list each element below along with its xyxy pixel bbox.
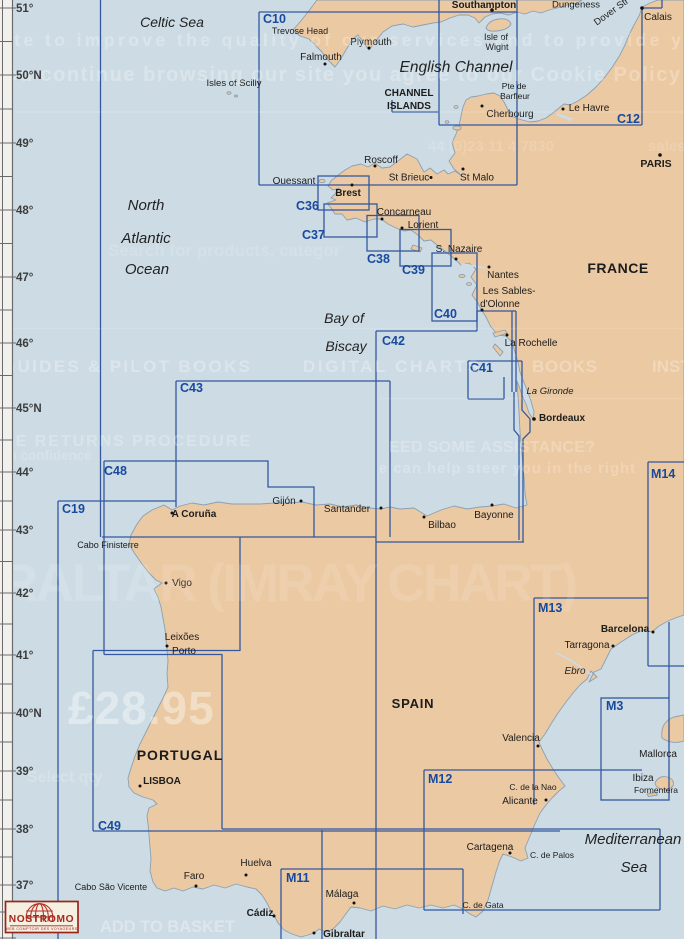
svg-text:45°N: 45°N bbox=[16, 403, 42, 415]
svg-text:GUIDES & PILOT BOOKS: GUIDES & PILOT BOOKS bbox=[2, 357, 250, 376]
svg-text:Sea: Sea bbox=[621, 859, 648, 876]
svg-text:41°: 41° bbox=[16, 650, 34, 662]
svg-text:INSTRUMENTS: INSTRUMENTS bbox=[652, 357, 684, 376]
svg-text:C40: C40 bbox=[434, 307, 457, 321]
svg-text:Mediterranean: Mediterranean bbox=[585, 831, 682, 848]
svg-text:Ibiza: Ibiza bbox=[632, 773, 654, 784]
svg-text:M11: M11 bbox=[286, 871, 310, 885]
svg-text:Search for products, categor: Search for products, categor bbox=[108, 241, 341, 260]
svg-text:Lorient: Lorient bbox=[408, 220, 439, 231]
svg-text:A Coruña: A Coruña bbox=[172, 509, 217, 520]
svg-text:Ouessant: Ouessant bbox=[273, 176, 316, 187]
svg-text:44°: 44° bbox=[16, 467, 34, 479]
svg-text:Celtic Sea: Celtic Sea bbox=[140, 14, 204, 30]
svg-text:NOSTROMO: NOSTROMO bbox=[9, 914, 75, 925]
svg-text:C38: C38 bbox=[367, 252, 390, 266]
svg-text:Tarragona: Tarragona bbox=[564, 640, 609, 651]
svg-text:43°: 43° bbox=[16, 525, 34, 537]
svg-text:PARIS: PARIS bbox=[640, 158, 671, 170]
svg-text:La Gironde: La Gironde bbox=[526, 386, 573, 397]
svg-text:BOOKS: BOOKS bbox=[532, 357, 597, 376]
svg-text:46°: 46° bbox=[16, 338, 34, 350]
svg-text:C12: C12 bbox=[617, 112, 640, 126]
svg-text:Cartagena: Cartagena bbox=[467, 842, 514, 853]
svg-text:C. de Gata: C. de Gata bbox=[462, 900, 503, 910]
svg-text:44 (0)23 11 4 7830: 44 (0)23 11 4 7830 bbox=[428, 138, 554, 155]
svg-text:North: North bbox=[128, 197, 165, 214]
svg-text:Dungeness: Dungeness bbox=[552, 0, 600, 11]
svg-text:Valencia: Valencia bbox=[502, 733, 540, 744]
svg-text:51°: 51° bbox=[16, 3, 34, 15]
svg-text:d'Olonne: d'Olonne bbox=[480, 299, 520, 310]
svg-text:C37: C37 bbox=[302, 228, 325, 242]
svg-text:LISBOA: LISBOA bbox=[143, 776, 181, 787]
svg-text:Mallorca: Mallorca bbox=[639, 749, 677, 760]
svg-text:37°: 37° bbox=[16, 880, 34, 892]
svg-text:42°: 42° bbox=[16, 588, 34, 600]
svg-text:M14: M14 bbox=[651, 467, 675, 481]
svg-text:Gijón: Gijón bbox=[272, 496, 295, 507]
svg-text:C10: C10 bbox=[263, 12, 286, 26]
svg-text:Bay of: Bay of bbox=[324, 310, 366, 326]
svg-text:th confidence: th confidence bbox=[4, 448, 92, 463]
svg-text:Select qty: Select qty bbox=[27, 769, 103, 786]
svg-text:CHANNEL: CHANNEL bbox=[385, 88, 434, 99]
svg-text:Cabo São Vicente: Cabo São Vicente bbox=[75, 882, 147, 892]
svg-text:Porto: Porto bbox=[172, 646, 196, 657]
svg-text:50°N: 50°N bbox=[16, 70, 42, 82]
svg-text:Ocean: Ocean bbox=[125, 261, 169, 278]
svg-text:Bilbao: Bilbao bbox=[428, 520, 456, 531]
svg-text:Brest: Brest bbox=[335, 188, 361, 199]
svg-text:M3: M3 bbox=[606, 699, 623, 713]
svg-text:49°: 49° bbox=[16, 138, 34, 150]
svg-text:Faro: Faro bbox=[184, 871, 205, 882]
svg-text:39°: 39° bbox=[16, 766, 34, 778]
svg-text:Biscay: Biscay bbox=[325, 338, 367, 354]
svg-text:RALTAR (IMRAY CHART): RALTAR (IMRAY CHART) bbox=[0, 554, 578, 613]
svg-text:C42: C42 bbox=[382, 334, 405, 348]
svg-text:C19: C19 bbox=[62, 502, 85, 516]
svg-text:£28.95: £28.95 bbox=[68, 682, 215, 734]
svg-text:e can help steer you in the ri: e can help steer you in the right bbox=[379, 461, 635, 477]
svg-text:PORTUGAL: PORTUGAL bbox=[137, 747, 224, 763]
svg-text:C49: C49 bbox=[98, 819, 121, 833]
svg-text:C43: C43 bbox=[180, 381, 203, 395]
svg-text:Ebro: Ebro bbox=[564, 666, 586, 677]
svg-text:Calais: Calais bbox=[644, 12, 672, 23]
svg-text:S. Nazaire: S. Nazaire bbox=[436, 244, 483, 255]
svg-text:M12: M12 bbox=[428, 772, 452, 786]
svg-text:Barcelona: Barcelona bbox=[601, 624, 650, 635]
svg-text:ADD TO BASKET: ADD TO BASKET bbox=[100, 918, 235, 936]
svg-text:Falmouth: Falmouth bbox=[300, 52, 342, 63]
svg-text:C. de Palos: C. de Palos bbox=[530, 850, 574, 860]
svg-text:FRANCE: FRANCE bbox=[587, 260, 648, 276]
svg-text:Nantes: Nantes bbox=[487, 270, 519, 281]
svg-text:ou continue browsing our site: ou continue browsing our site you agree … bbox=[6, 64, 681, 86]
svg-text:ite to improve the quality of: ite to improve the quality of our servic… bbox=[6, 30, 684, 50]
svg-text:La Rochelle: La Rochelle bbox=[505, 338, 558, 349]
svg-text:St Brieuc: St Brieuc bbox=[389, 173, 430, 184]
svg-text:ISLANDS: ISLANDS bbox=[387, 101, 431, 112]
svg-text:Bayonne: Bayonne bbox=[474, 510, 514, 521]
svg-text:Cádiz: Cádiz bbox=[247, 908, 274, 919]
svg-text:Roscoff: Roscoff bbox=[364, 155, 398, 166]
svg-text:47°: 47° bbox=[16, 272, 34, 284]
svg-text:38°: 38° bbox=[16, 824, 34, 836]
svg-text:C39: C39 bbox=[402, 263, 425, 277]
svg-text:Huelva: Huelva bbox=[240, 858, 272, 869]
svg-text:sales@nos: sales@nos bbox=[648, 138, 684, 155]
svg-text:St Malo: St Malo bbox=[460, 173, 494, 184]
svg-text:WEB COMPTOIR DES VOYAGEURS: WEB COMPTOIR DES VOYAGEURS bbox=[5, 927, 77, 931]
svg-text:C48: C48 bbox=[104, 464, 127, 478]
svg-text:EED SOME ASSISTANCE?: EED SOME ASSISTANCE? bbox=[389, 439, 595, 456]
svg-text:C. de la Nao: C. de la Nao bbox=[509, 782, 557, 792]
svg-text:SPAIN: SPAIN bbox=[392, 696, 435, 711]
svg-text:Cabo Finisterre: Cabo Finisterre bbox=[77, 540, 139, 550]
svg-text:Málaga: Málaga bbox=[326, 889, 359, 900]
svg-text:Southampton: Southampton bbox=[452, 0, 516, 11]
svg-text:48°: 48° bbox=[16, 205, 34, 217]
svg-text:Barfleur: Barfleur bbox=[500, 91, 530, 101]
svg-text:Bordeaux: Bordeaux bbox=[539, 413, 586, 424]
svg-text:C36: C36 bbox=[296, 199, 319, 213]
svg-text:Cherbourg: Cherbourg bbox=[486, 109, 533, 120]
svg-text:Concarneau: Concarneau bbox=[377, 207, 431, 218]
svg-text:40°N: 40°N bbox=[16, 708, 42, 720]
svg-text:Formentera: Formentera bbox=[634, 785, 678, 795]
svg-text:Alicante: Alicante bbox=[502, 796, 538, 807]
svg-text:Leixões: Leixões bbox=[165, 632, 199, 643]
svg-text:Les Sables-: Les Sables- bbox=[483, 286, 536, 297]
svg-text:Santander: Santander bbox=[324, 504, 371, 515]
svg-text:Gibraltar: Gibraltar bbox=[323, 929, 365, 939]
